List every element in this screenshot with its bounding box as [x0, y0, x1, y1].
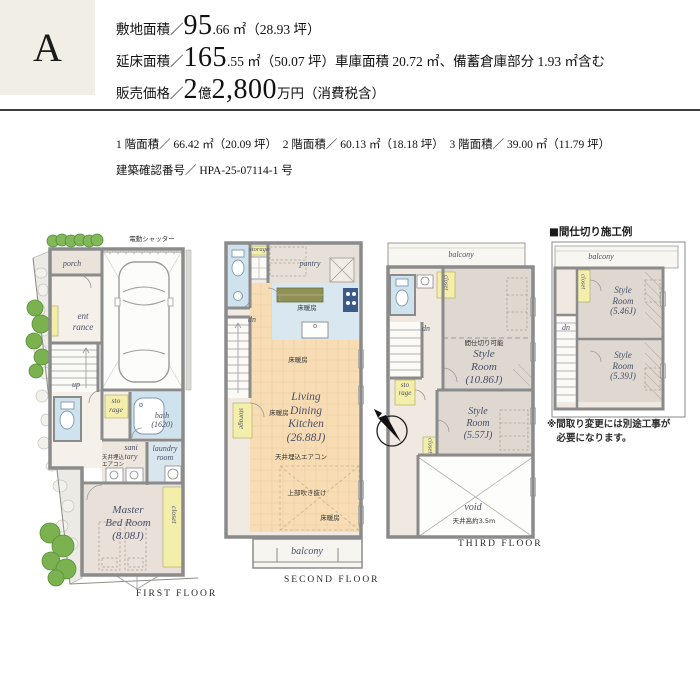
first-floor-plan: 電動シャッター porch ent rance up sto rage bath…: [20, 228, 220, 603]
label-void: void: [453, 502, 493, 514]
label-dn-2f: dn: [242, 315, 262, 324]
neighbor-wall: [186, 250, 191, 390]
label-balcony-2f: balcony: [277, 546, 337, 558]
price-oku: 2: [184, 74, 199, 105]
label-style-room-b: Style Room (5.39J): [598, 350, 648, 382]
label-ceiling-aircon: 天井埋込エアコン: [272, 453, 330, 461]
price-label: 販売価格／: [116, 86, 184, 101]
label-dn-partition: dn: [557, 323, 575, 332]
label-dn-3f: dn: [416, 324, 436, 333]
plan-letter-box: A: [0, 0, 95, 95]
site-area-rest: .66 ㎡（28.93 坪）: [213, 22, 321, 37]
second-floor-plan: storage pantry dn 床暖房 床暖房 床暖房 床暖房 Living…: [222, 238, 390, 590]
label-style-room-a: Style Room (5.46J): [598, 285, 648, 317]
confirmation-number-line: 建築確認番号／ HPA-25-07114-1 号: [116, 162, 293, 178]
label-style-room-small: Style Room (5.57J): [448, 406, 508, 441]
label-floor-heating-1: 床暖房: [292, 304, 322, 312]
plan-letter: A: [33, 24, 62, 71]
property-sheet: A 敷地面積／95.66 ㎡（28.93 坪） 延床面積／165.55 ㎡（50…: [0, 0, 700, 700]
label-ldk: Living Dining Kitchen (26.88J): [268, 391, 344, 445]
divider-line: [0, 109, 700, 111]
first-floor-drawing: [20, 228, 220, 603]
third-floor-plan: balcony closet dn 間仕切り可能 Style Room (10.…: [370, 238, 542, 553]
washbasin-icon: [417, 275, 433, 288]
floor-areas-line: 1 階面積／ 66.42 ㎡（20.09 坪） 2 階面積／ 60.13 ㎡（1…: [116, 136, 610, 152]
price-oku-unit: 億: [198, 86, 212, 101]
label-laundry: laundry room: [146, 444, 184, 463]
label-closet-lower: closet: [426, 438, 434, 453]
label-floor-heating-4: 床暖房: [315, 514, 345, 522]
label-closet-partition: closet: [579, 274, 587, 289]
floor-area-label: 延床面積／: [116, 54, 184, 69]
price-line: 販売価格／2億2,800万円（消費税含）: [116, 74, 385, 106]
partition-example-title: ■間仕切り施工例: [549, 224, 632, 239]
site-area-value: 95: [184, 10, 213, 41]
price-man: 2,800: [212, 74, 278, 105]
label-storage-top: storage: [249, 246, 269, 254]
toilet-icon: [60, 402, 74, 429]
washer-icon: [165, 466, 181, 483]
label-storage-3f: sto rage: [393, 381, 417, 398]
floor-area-rest: .55 ㎡（50.07 坪）車庫面積 20.72 ㎡、備蓄倉庫部分 1.93 ㎡…: [227, 54, 605, 69]
price-rest: 万円（消費税含）: [277, 86, 385, 101]
label-balcony-partition: balcony: [576, 252, 626, 261]
site-area-line: 敷地面積／95.66 ㎡（28.93 坪）: [116, 10, 321, 42]
toilet-icon: [396, 279, 408, 306]
label-partitionable: 間仕切り可能: [460, 339, 508, 347]
third-floor-title: THIRD FLOOR: [458, 539, 543, 549]
label-closet-1f: closet: [169, 506, 178, 524]
label-master-bedroom: Master Bed Room (8.08J): [90, 504, 166, 543]
label-storage-left: storage: [237, 408, 245, 429]
label-style-room-large: Style Room (10.86J): [454, 348, 514, 387]
first-floor-title: FIRST FLOOR: [136, 589, 217, 599]
label-bath: bath (1620): [142, 411, 182, 430]
label-sanitary: sani tary: [114, 443, 148, 462]
label-balcony-3f: balcony: [436, 250, 486, 259]
label-porch: porch: [52, 259, 92, 268]
stove-icon: [343, 288, 358, 312]
label-storage-1f: sto rage: [102, 397, 130, 415]
label-closet-upper: closet: [442, 275, 450, 290]
label-entrance: ent rance: [63, 311, 103, 332]
hedge-icon: [47, 234, 103, 247]
label-pantry: pantry: [290, 259, 330, 268]
car-icon: [115, 262, 173, 382]
partition-note: ※間取り変更には別途工事が 必要になります。: [547, 418, 699, 446]
second-floor-title: SECOND FLOOR: [284, 575, 380, 585]
label-electric-shutter: 電動シャッター: [123, 235, 181, 243]
label-floor-heating-2: 床暖房: [283, 356, 313, 364]
floor-area-line: 延床面積／165.55 ㎡（50.07 坪）車庫面積 20.72 ㎡、備蓄倉庫部…: [116, 42, 605, 74]
label-up: up: [64, 380, 88, 389]
label-open-above: 上部吹き抜け: [279, 489, 335, 497]
label-ceiling-height: 天井高約3.5m: [445, 517, 503, 525]
floor-area-value: 165: [184, 42, 228, 73]
site-area-label: 敷地面積／: [116, 22, 184, 37]
partition-example-plan: ■間仕切り施工例 balcony closet Style Room (5.46…: [545, 222, 700, 457]
